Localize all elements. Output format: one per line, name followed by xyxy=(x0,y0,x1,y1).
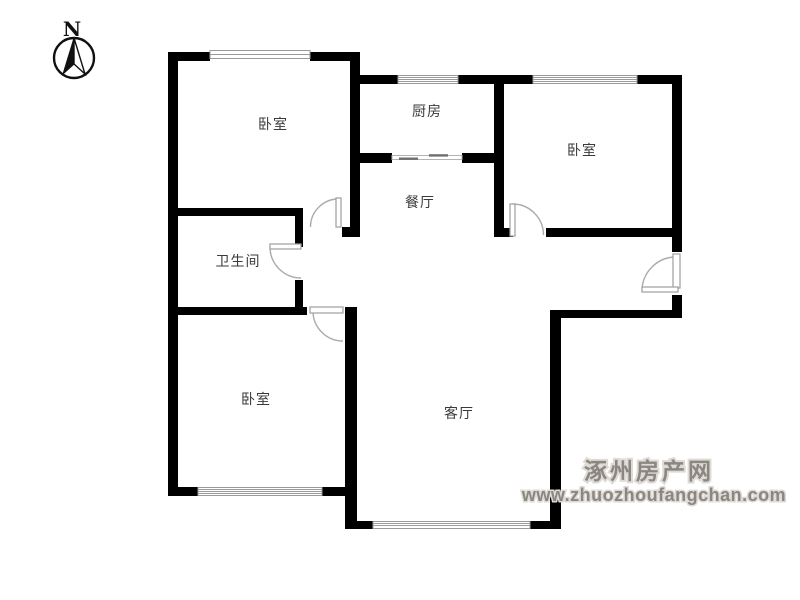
room-label-kitchen: 厨房 xyxy=(412,103,442,119)
room-label-bedroom-bottom-left: 卧室 xyxy=(241,391,271,407)
room-label-bathroom: 卫生间 xyxy=(216,253,261,269)
compass-needle-icon xyxy=(74,38,85,74)
wall-segment xyxy=(168,208,303,216)
floor-plan: 卧室 厨房 卧室 餐厅 卫生间 卧室 客厅 N 涿州房产网 www.zhuozh… xyxy=(0,0,800,600)
wall-segment xyxy=(168,487,198,496)
room-label-living-room: 客厅 xyxy=(444,405,474,421)
wall-segment xyxy=(672,75,682,252)
wall-segment xyxy=(322,487,357,496)
window-bedroom-top-left xyxy=(210,51,310,59)
wall-segment xyxy=(168,52,178,496)
window-bedroom-top-right xyxy=(533,76,637,84)
watermark-site-url: www.zhuozhoufangchan.com xyxy=(521,485,786,505)
wall-segment xyxy=(462,153,504,163)
compass-needle-icon xyxy=(63,38,74,74)
room-label-dining-room: 餐厅 xyxy=(405,194,435,210)
window-living-room xyxy=(373,522,530,529)
wall-segment xyxy=(350,52,360,237)
wall-segment xyxy=(504,75,533,84)
sliding-door-kitchen xyxy=(392,154,462,160)
wall-segment xyxy=(295,208,303,247)
room-label-bedroom-top-right: 卧室 xyxy=(567,142,597,158)
wall-segment xyxy=(550,310,682,318)
wall-segment xyxy=(360,75,398,84)
window-bedroom-bottom-left xyxy=(198,488,322,496)
door-bathroom xyxy=(270,244,301,278)
wall-segment xyxy=(345,521,373,529)
door-bedroom-top-right xyxy=(510,204,544,236)
door-hall xyxy=(311,198,342,227)
wall-segment xyxy=(168,307,307,315)
door-entry xyxy=(642,254,680,292)
wall-segment xyxy=(168,52,210,61)
door-bedroom-bottom-left xyxy=(310,307,343,341)
watermark-site-name: 涿州房产网 xyxy=(584,458,714,484)
window-kitchen xyxy=(398,76,458,84)
wall-segment xyxy=(342,227,360,237)
wall-segment xyxy=(350,153,392,163)
room-label-bedroom-top-left: 卧室 xyxy=(258,116,288,132)
compass: N xyxy=(54,17,94,78)
wall-segment xyxy=(546,228,682,237)
